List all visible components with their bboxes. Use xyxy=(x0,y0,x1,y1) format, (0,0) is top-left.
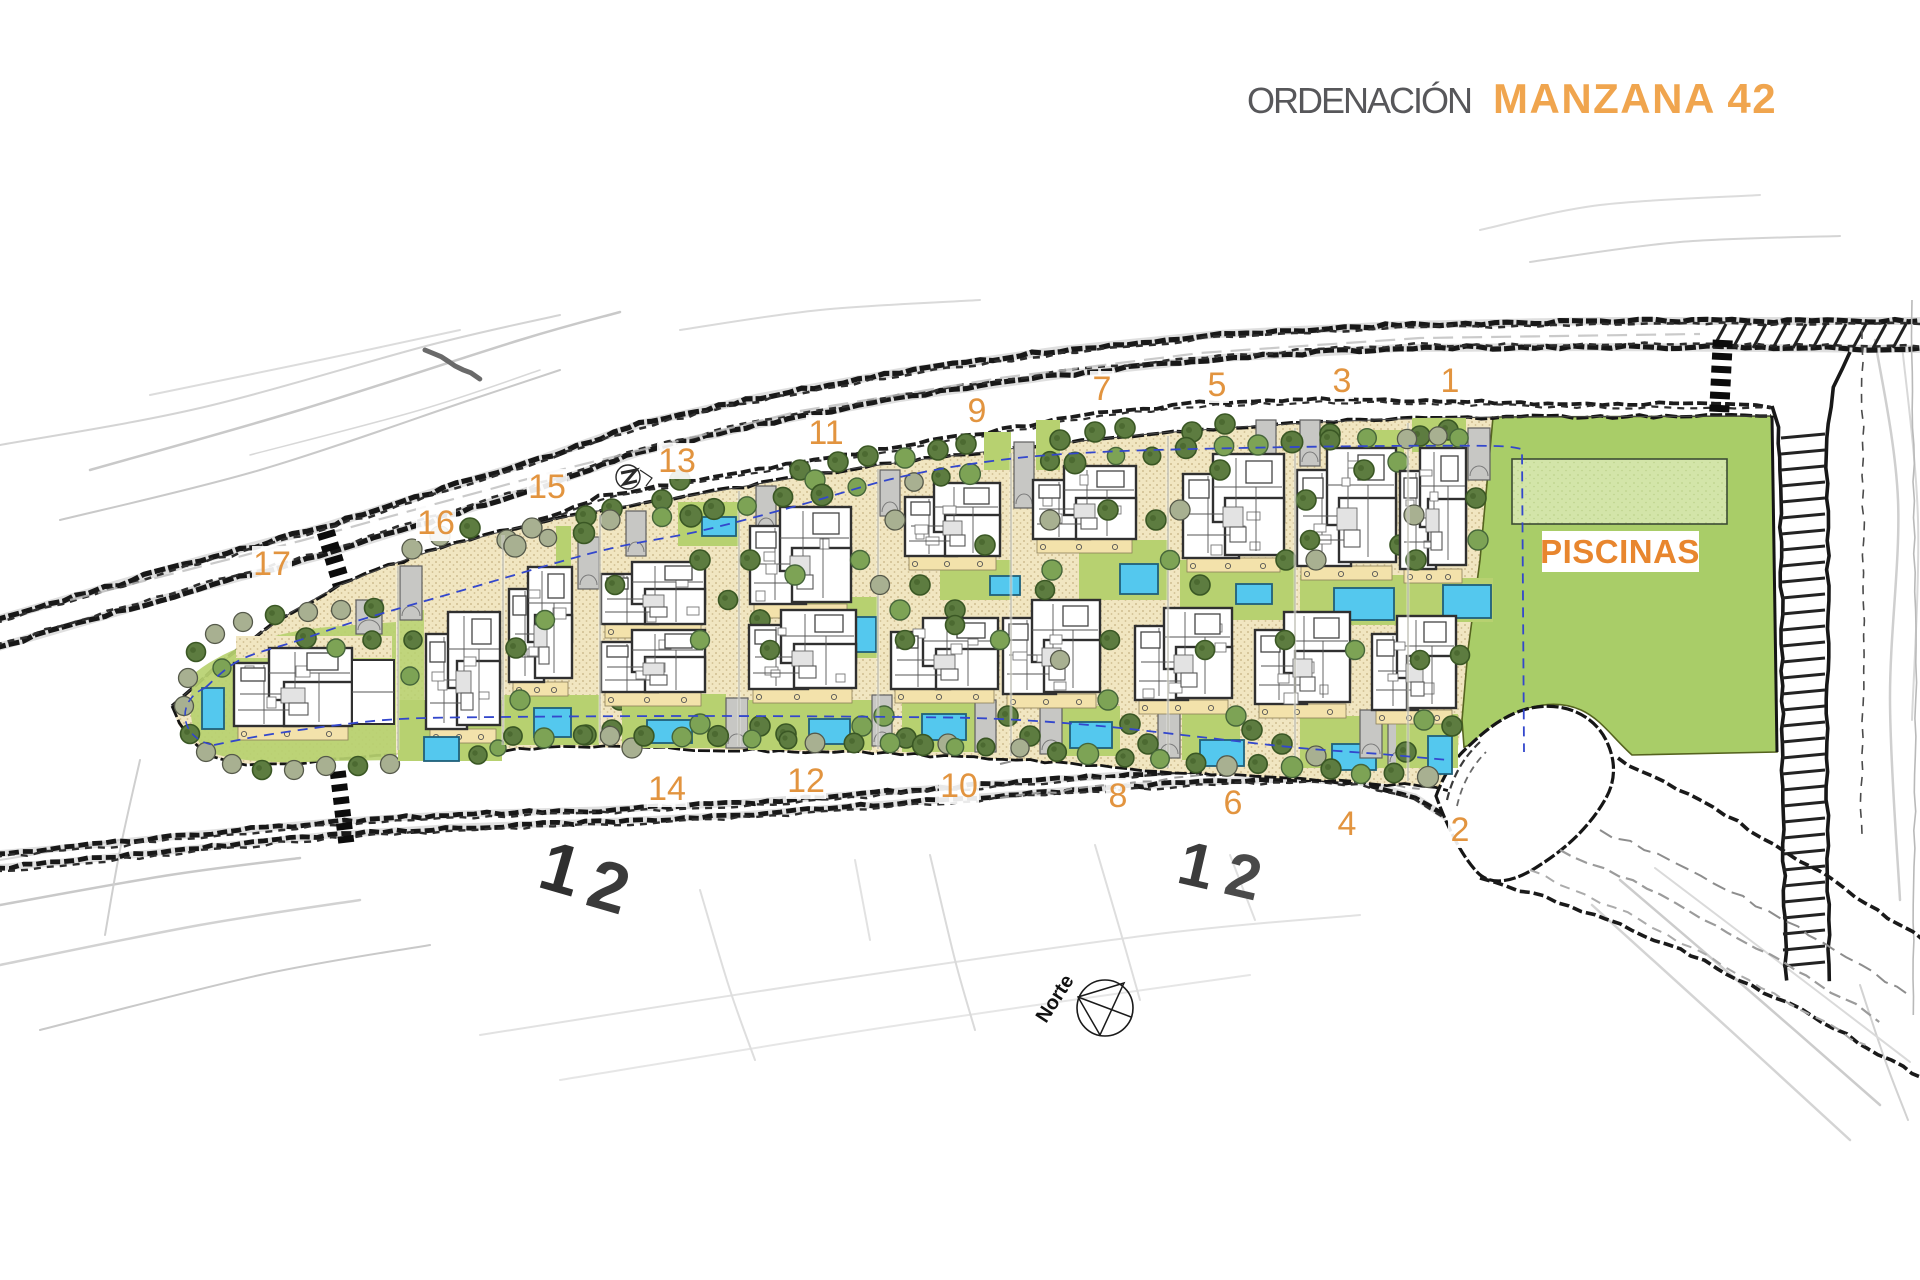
svg-text:4: 4 xyxy=(1338,805,1357,843)
svg-text:ORDENACIÓN: ORDENACIÓN xyxy=(1247,80,1471,121)
svg-text:9: 9 xyxy=(968,392,987,430)
svg-text:13: 13 xyxy=(658,442,696,480)
svg-text:7: 7 xyxy=(1093,370,1112,408)
svg-text:1: 1 xyxy=(1441,362,1460,400)
svg-text:10: 10 xyxy=(940,767,978,805)
svg-text:16: 16 xyxy=(417,504,455,542)
svg-text:6: 6 xyxy=(1224,784,1243,822)
svg-text:12: 12 xyxy=(787,762,825,800)
svg-text:17: 17 xyxy=(253,545,291,583)
svg-text:15: 15 xyxy=(528,468,566,506)
svg-text:MANZANA 42: MANZANA 42 xyxy=(1493,75,1777,122)
svg-text:PISCINAS: PISCINAS xyxy=(1540,533,1700,570)
svg-text:8: 8 xyxy=(1109,777,1128,815)
svg-text:2: 2 xyxy=(1451,811,1470,849)
svg-text:11: 11 xyxy=(808,414,843,452)
svg-text:14: 14 xyxy=(648,770,686,808)
svg-text:5: 5 xyxy=(1208,366,1227,404)
svg-text:3: 3 xyxy=(1333,362,1352,400)
